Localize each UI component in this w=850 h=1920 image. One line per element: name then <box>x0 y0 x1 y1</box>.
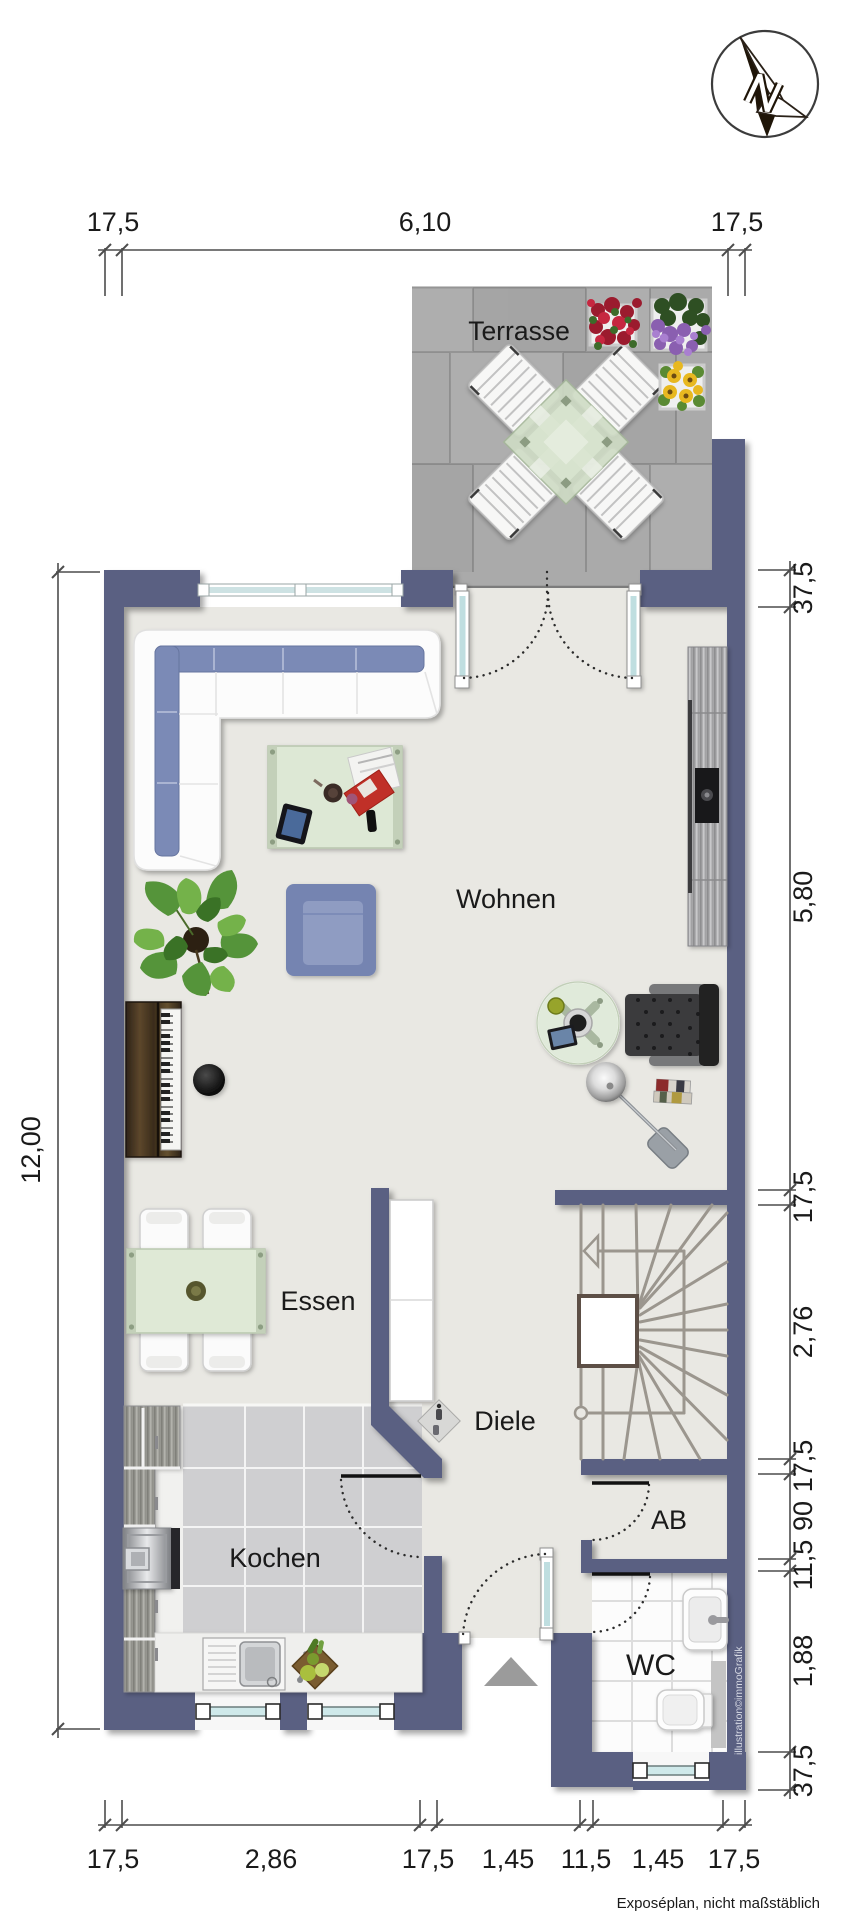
svg-text:1,88: 1,88 <box>788 1635 818 1688</box>
svg-text:illustration©immoGrafik: illustration©immoGrafik <box>733 1646 745 1755</box>
svg-text:Terrasse: Terrasse <box>468 316 570 346</box>
svg-text:2,76: 2,76 <box>788 1306 818 1359</box>
svg-text:12,00: 12,00 <box>16 1116 46 1184</box>
svg-text:Essen: Essen <box>280 1286 355 1316</box>
svg-text:WC: WC <box>626 1649 676 1682</box>
svg-text:11,5: 11,5 <box>561 1844 612 1874</box>
svg-text:90: 90 <box>788 1501 818 1531</box>
svg-text:37,5: 37,5 <box>788 1745 818 1798</box>
svg-text:37,5: 37,5 <box>788 562 818 615</box>
svg-text:17,5: 17,5 <box>87 1844 140 1874</box>
svg-text:17,5: 17,5 <box>711 207 764 237</box>
svg-text:11,5: 11,5 <box>788 1540 818 1591</box>
svg-text:17,5: 17,5 <box>788 1171 818 1224</box>
svg-text:17,5: 17,5 <box>402 1844 455 1874</box>
svg-text:1,45: 1,45 <box>482 1844 535 1874</box>
svg-text:2,86: 2,86 <box>245 1844 298 1874</box>
svg-text:5,80: 5,80 <box>788 871 818 924</box>
svg-text:17,5: 17,5 <box>708 1844 761 1874</box>
svg-text:6,10: 6,10 <box>399 207 452 237</box>
svg-text:Exposéplan, nicht maßstäblich: Exposéplan, nicht maßstäblich <box>617 1895 820 1912</box>
svg-text:AB: AB <box>651 1505 687 1535</box>
svg-text:Diele: Diele <box>474 1406 536 1436</box>
svg-text:17,5: 17,5 <box>87 207 140 237</box>
svg-text:Wohnen: Wohnen <box>456 884 556 914</box>
svg-text:Kochen: Kochen <box>229 1543 321 1573</box>
svg-text:1,45: 1,45 <box>632 1844 685 1874</box>
svg-text:17,5: 17,5 <box>788 1440 818 1493</box>
